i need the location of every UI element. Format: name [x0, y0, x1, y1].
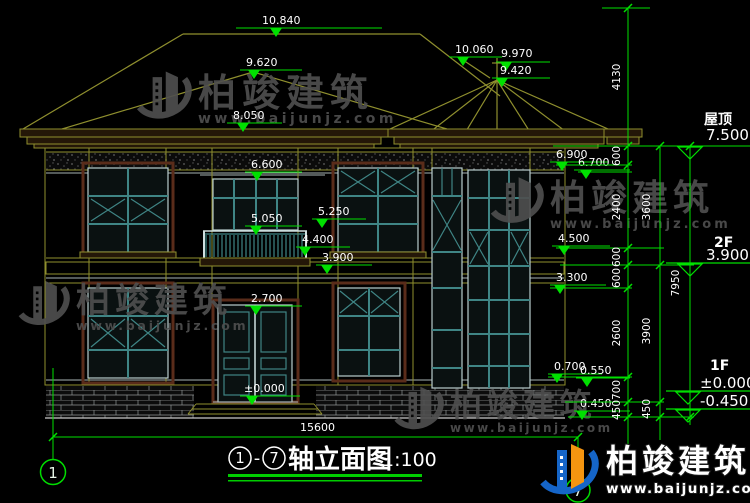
svg-text:9.970: 9.970 [501, 47, 533, 60]
dim-value: 450 [641, 399, 653, 419]
brand-text: 柏竣建筑 [198, 71, 374, 115]
watermark-left: 柏竣建筑 www.baijunjz.com [21, 281, 248, 333]
axis-bubble-left: 1 [41, 460, 66, 485]
svg-text:3.900: 3.900 [322, 251, 354, 264]
drawing-scale: 1:100 [382, 449, 437, 471]
svg-text:1: 1 [48, 464, 58, 482]
dim-value: 15600 [300, 421, 335, 434]
brand-url: www.baijunjz.com [450, 421, 613, 435]
svg-text:10.060: 10.060 [455, 43, 494, 56]
svg-text:4.500: 4.500 [558, 232, 590, 245]
level-roof: 屋顶 7.500 [678, 112, 749, 159]
title-underline [228, 474, 422, 477]
svg-text:8.050: 8.050 [233, 109, 265, 122]
svg-text:±0.000: ±0.000 [700, 374, 750, 392]
watermark-top: 柏竣建筑 www.baijunjz.com [140, 71, 398, 127]
dim-value: 600 [611, 247, 623, 267]
watermark-brand-color: 柏竣建筑 www.baijunjz.com [543, 442, 750, 497]
elevation-mark: 9.420 [492, 64, 550, 87]
dim-value: 3900 [641, 318, 653, 345]
svg-text:6.700: 6.700 [578, 156, 610, 169]
cad-elevation-screenshot: 柏竣建筑 www.baijunjz.com 柏竣建筑 www.baijunjz.… [0, 0, 750, 503]
entry-steps [188, 404, 322, 414]
svg-text:0.550: 0.550 [580, 364, 612, 377]
dim-value: 600 [611, 268, 623, 288]
dim-value: 700 [611, 380, 623, 400]
svg-text:±0.000: ±0.000 [244, 382, 285, 395]
brand-url: www.baijunjz.com [198, 111, 397, 127]
brand-text: 柏竣建筑 [606, 442, 750, 480]
brand-text: 柏竣建筑 [450, 386, 596, 424]
window-2f-left [80, 163, 176, 258]
window-tall-narrow [432, 168, 462, 388]
window-1f-right [333, 283, 405, 381]
svg-text:1: 1 [235, 449, 245, 467]
svg-text:9.620: 9.620 [246, 56, 278, 69]
svg-text:0.450: 0.450 [580, 397, 612, 410]
svg-text:4.400: 4.400 [302, 233, 334, 246]
brand-url: www.baijunjz.com [606, 481, 750, 497]
svg-text:-0.450: -0.450 [700, 392, 748, 410]
dim-value: 2600 [611, 320, 623, 347]
dim-value: 3600 [641, 194, 653, 221]
brand-logo-color-icon [543, 444, 595, 491]
eave-cornice [20, 129, 642, 148]
svg-text:7: 7 [269, 449, 279, 467]
title-underline-thin [228, 480, 422, 482]
svg-text:1F: 1F [710, 358, 729, 374]
elevation-mark: 3.300 [550, 271, 606, 294]
svg-text:3.300: 3.300 [556, 271, 588, 284]
svg-text:10.840: 10.840 [262, 14, 301, 27]
dim-value: 450 [611, 400, 623, 420]
storey-levels: 屋顶 7.500 2F 3.900 1F ±0.000 -0.450 [666, 112, 750, 422]
dim-value: 2400 [611, 194, 623, 221]
svg-text:9.420: 9.420 [500, 64, 532, 77]
svg-text:7.500: 7.500 [706, 126, 749, 144]
drawing-canvas: 柏竣建筑 www.baijunjz.com 柏竣建筑 www.baijunjz.… [0, 0, 750, 503]
elevation-mark: 4.500 [552, 232, 610, 255]
drawing-title: 轴立面图 [288, 444, 392, 475]
balcony-railing [200, 231, 310, 266]
dim-value: 600 [611, 146, 623, 166]
brand-text: 柏竣建筑 [550, 178, 714, 219]
brand-logo-icon [21, 281, 67, 322]
brand-url: www.baijunjz.com [76, 318, 248, 333]
svg-text:5.050: 5.050 [251, 212, 283, 225]
dim-value: 4130 [611, 64, 623, 91]
svg-text:2.700: 2.700 [251, 292, 283, 305]
dim-value: 7950 [670, 270, 682, 297]
svg-text:5.250: 5.250 [318, 205, 350, 218]
title-block: 1 - 7 轴立面图 1:100 [228, 444, 437, 482]
svg-text:3.900: 3.900 [706, 246, 749, 264]
title-dash: - [254, 448, 261, 469]
brand-text: 柏竣建筑 [76, 281, 232, 321]
svg-text:6.600: 6.600 [251, 158, 283, 171]
